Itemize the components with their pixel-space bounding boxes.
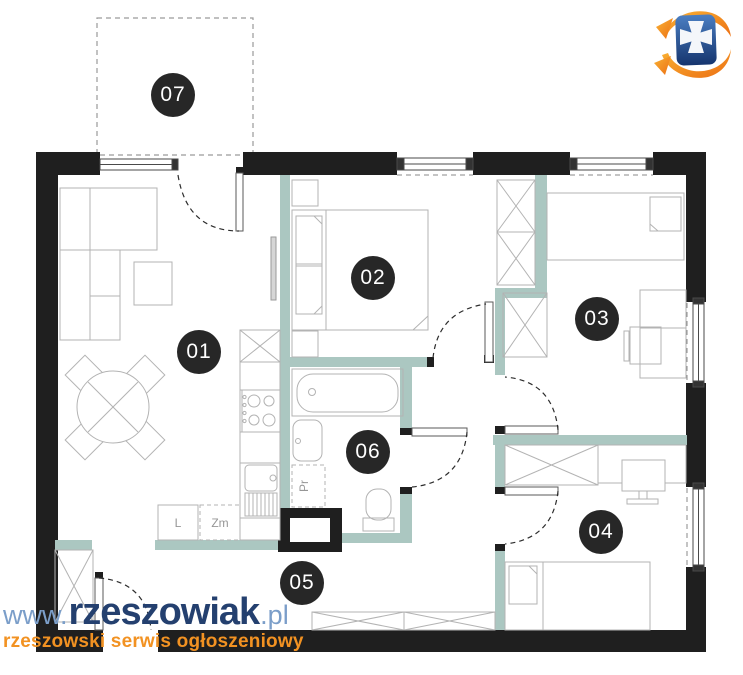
wardrobe-room-04 [505, 445, 598, 485]
washing-machine-label: Pr [297, 480, 311, 492]
coffee-table [134, 262, 172, 305]
room-label-02: 02 [351, 256, 395, 300]
monitor-room-04 [622, 460, 665, 504]
bathroom-door [412, 428, 467, 487]
dining-table [65, 355, 165, 460]
fridge-label: L [175, 516, 182, 530]
toilet [363, 489, 394, 531]
bed-single-room-03 [547, 193, 684, 260]
rzeszowiak-logo [652, 5, 738, 90]
ventilation-shaft [278, 508, 342, 552]
floor-plan-page: L Zm Pr 01 02 03 04 05 06 07 www.rzeszow… [0, 0, 743, 675]
entrance-door [95, 578, 151, 630]
balcony-window [100, 159, 178, 170]
room-label-01: 01 [177, 330, 221, 374]
bed-single-room-04 [505, 562, 650, 630]
entry-wardrobe [55, 550, 93, 622]
hall-wardrobe [312, 612, 495, 630]
wardrobe-room-02 [497, 180, 535, 285]
balcony-door [178, 173, 243, 231]
room-02-door [433, 302, 493, 362]
sofa [60, 188, 157, 340]
room-03-door [505, 377, 558, 434]
rzeszowiak-logo-graphic [652, 5, 738, 85]
bathtub [292, 369, 403, 416]
kitchen-counter [240, 330, 280, 540]
room-label-06: 06 [346, 430, 390, 474]
logo-shield [675, 14, 717, 65]
window-room-04-right [687, 483, 704, 571]
room-label-04: 04 [579, 510, 623, 554]
dishwasher-label: Zm [211, 516, 228, 530]
chair-room-03 [624, 327, 661, 364]
tv [271, 237, 276, 300]
window-room-02 [397, 158, 473, 175]
desk-room-03 [640, 290, 686, 378]
room-label-05: 05 [280, 561, 324, 605]
window-room-03-right [687, 298, 704, 387]
room-label-07: 07 [151, 73, 195, 117]
room-label-03: 03 [575, 297, 619, 341]
wardrobe-room-03 [503, 293, 547, 357]
floor-plan-drawing: L Zm Pr [0, 0, 743, 675]
window-room-03-top [570, 158, 653, 175]
room-04-door [505, 487, 558, 544]
washbasin [293, 420, 322, 461]
